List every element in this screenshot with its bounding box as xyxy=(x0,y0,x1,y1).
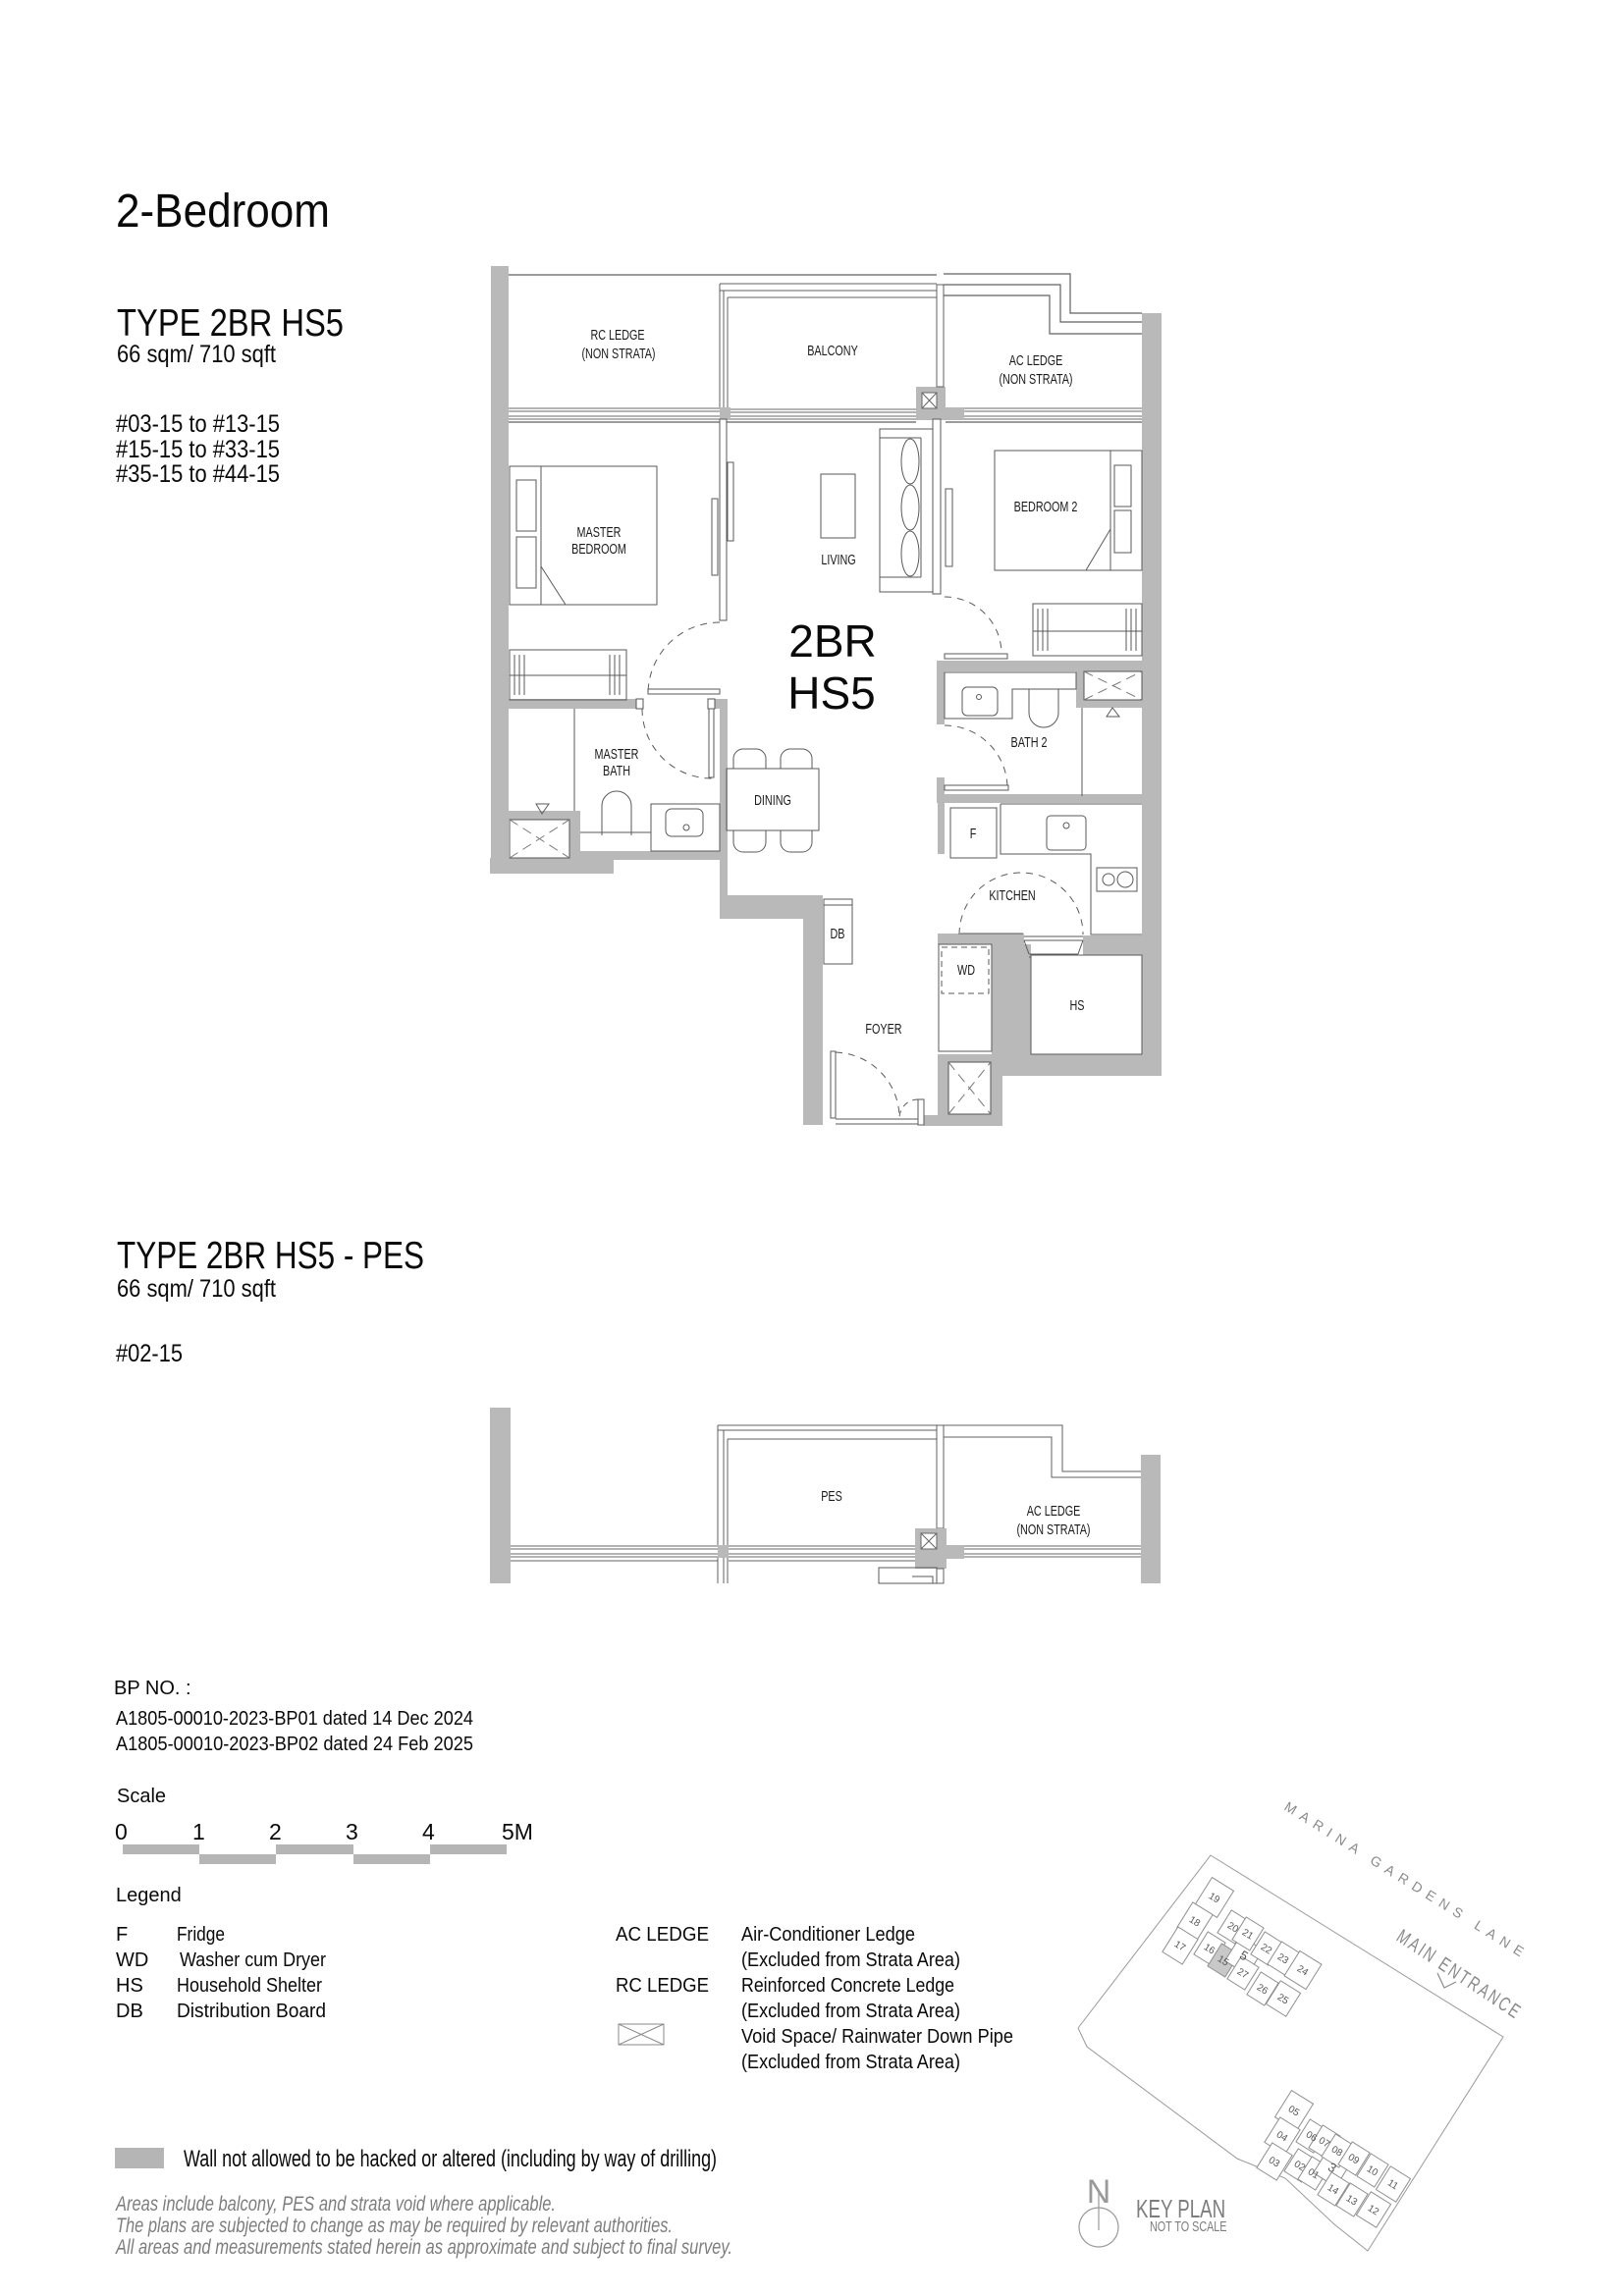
svg-text:#15-15 to #33-15: #15-15 to #33-15 xyxy=(116,436,280,463)
svg-text:BP NO. :: BP NO. : xyxy=(114,1678,191,1699)
svg-text:Distribution Board: Distribution Board xyxy=(177,2001,326,2022)
svg-text:4: 4 xyxy=(422,1819,435,1844)
svg-text:Household Shelter: Household Shelter xyxy=(177,1975,322,1997)
svg-text:(Excluded from Strata Area): (Excluded from Strata Area) xyxy=(741,1949,960,1971)
svg-text:KITCHEN: KITCHEN xyxy=(989,886,1035,903)
svg-text:LIVING: LIVING xyxy=(821,551,855,567)
svg-text:Fridge: Fridge xyxy=(177,1924,225,1946)
svg-text:2: 2 xyxy=(269,1819,282,1844)
svg-text:Void Space/ Rainwater Down Pip: Void Space/ Rainwater Down Pipe xyxy=(741,2026,1013,2048)
svg-text:Washer cum Dryer: Washer cum Dryer xyxy=(180,1949,326,1971)
svg-text:All areas and measurements sta: All areas and measurements stated herein… xyxy=(114,2236,732,2259)
svg-text:2BR: 2BR xyxy=(788,615,876,667)
svg-text:F: F xyxy=(970,825,977,841)
svg-text:(NON STRATA): (NON STRATA) xyxy=(999,370,1072,387)
svg-text:NOT TO SCALE: NOT TO SCALE xyxy=(1150,2217,1227,2234)
svg-text:MASTER: MASTER xyxy=(577,523,622,540)
svg-text:Reinforced Concrete Ledge: Reinforced Concrete Ledge xyxy=(741,1975,954,1997)
svg-text:#02-15: #02-15 xyxy=(116,1340,183,1367)
svg-text:(Excluded from Strata Area): (Excluded from Strata Area) xyxy=(741,2052,960,2073)
svg-text:F: F xyxy=(116,1924,128,1946)
svg-text:N: N xyxy=(1087,2173,1111,2211)
svg-text:A1805-00010-2023-BP01 dated 14: A1805-00010-2023-BP01 dated 14 Dec 2024 xyxy=(116,1708,473,1730)
svg-text:FOYER: FOYER xyxy=(865,1020,901,1037)
svg-text:0: 0 xyxy=(115,1819,128,1844)
svg-text:BEDROOM 2: BEDROOM 2 xyxy=(1014,498,1078,514)
svg-text:TYPE 2BR HS5 - PES: TYPE 2BR HS5 - PES xyxy=(117,1235,424,1277)
svg-text:MASTER: MASTER xyxy=(595,745,639,762)
svg-text:Areas include balcony, PES and: Areas include balcony, PES and strata vo… xyxy=(114,2193,556,2216)
svg-text:Wall not allowed to be hacked: Wall not allowed to be hacked or altered… xyxy=(184,2146,717,2172)
svg-text:DB: DB xyxy=(831,925,845,941)
svg-text:(NON STRATA): (NON STRATA) xyxy=(1016,1521,1090,1537)
svg-text:DB: DB xyxy=(116,2001,143,2022)
svg-text:TYPE 2BR HS5: TYPE 2BR HS5 xyxy=(117,302,344,345)
svg-text:A1805-00010-2023-BP02 dated 24: A1805-00010-2023-BP02 dated 24 Feb 2025 xyxy=(116,1734,473,1755)
svg-text:Air-Conditioner Ledge: Air-Conditioner Ledge xyxy=(741,1924,915,1946)
svg-text:Legend: Legend xyxy=(116,1885,182,1906)
svg-text:BEDROOM: BEDROOM xyxy=(571,540,626,557)
svg-text:(NON STRATA): (NON STRATA) xyxy=(581,345,655,361)
svg-text:HS: HS xyxy=(1070,996,1085,1013)
svg-text:PES: PES xyxy=(821,1487,842,1504)
svg-text:BATH: BATH xyxy=(603,762,630,778)
svg-text:HS: HS xyxy=(116,1975,143,1997)
svg-text:66 sqm/ 710 sqft: 66 sqm/ 710 sqft xyxy=(117,1275,276,1303)
svg-text:#03-15 to #13-15: #03-15 to #13-15 xyxy=(116,410,280,438)
svg-text:BATH 2: BATH 2 xyxy=(1011,733,1048,750)
svg-text:WD: WD xyxy=(957,961,975,978)
svg-text:HS5: HS5 xyxy=(787,667,875,719)
svg-text:5M: 5M xyxy=(502,1819,533,1844)
svg-text:DINING: DINING xyxy=(754,791,791,808)
svg-text:RC LEDGE: RC LEDGE xyxy=(616,1975,709,1997)
svg-text:(Excluded from Strata Area): (Excluded from Strata Area) xyxy=(741,2001,960,2022)
svg-text:66 sqm/ 710 sqft: 66 sqm/ 710 sqft xyxy=(117,341,276,368)
svg-text:WD: WD xyxy=(116,1949,148,1971)
svg-text:AC LEDGE: AC LEDGE xyxy=(616,1924,709,1946)
svg-text:BALCONY: BALCONY xyxy=(807,342,858,358)
svg-text:RC LEDGE: RC LEDGE xyxy=(590,326,644,343)
svg-text:The plans are subjected to cha: The plans are subjected to change as may… xyxy=(116,2215,673,2237)
svg-text:3: 3 xyxy=(346,1819,358,1844)
svg-text:AC LEDGE: AC LEDGE xyxy=(1009,351,1063,368)
svg-text:#35-15 to #44-15: #35-15 to #44-15 xyxy=(116,460,280,488)
svg-text:1: 1 xyxy=(192,1819,205,1844)
svg-text:2-Bedroom: 2-Bedroom xyxy=(116,186,330,238)
svg-text:AC LEDGE: AC LEDGE xyxy=(1027,1502,1081,1519)
svg-text:Scale: Scale xyxy=(117,1786,166,1807)
